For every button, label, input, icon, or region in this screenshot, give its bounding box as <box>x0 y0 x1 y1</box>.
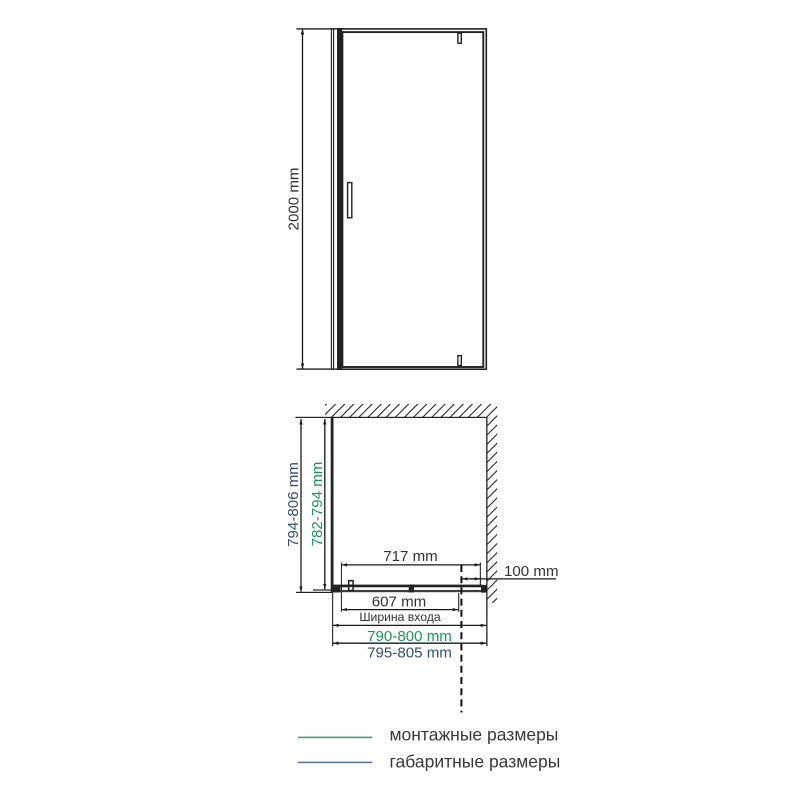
svg-text:монтажные размеры: монтажные размеры <box>390 725 559 745</box>
svg-text:2000 mm: 2000 mm <box>286 168 303 231</box>
svg-text:794-806 mm: 794-806 mm <box>285 462 302 547</box>
svg-text:782-794 mm: 782-794 mm <box>309 462 326 547</box>
svg-text:790-800 mm: 790-800 mm <box>367 628 452 645</box>
svg-text:795-805 mm: 795-805 mm <box>367 645 452 662</box>
svg-text:Ширина входа: Ширина входа <box>359 610 441 624</box>
svg-text:100 mm: 100 mm <box>504 563 559 580</box>
svg-text:607 mm: 607 mm <box>372 594 427 611</box>
svg-text:717 mm: 717 mm <box>383 548 438 565</box>
svg-text:габаритные размеры: габаритные размеры <box>390 752 561 772</box>
